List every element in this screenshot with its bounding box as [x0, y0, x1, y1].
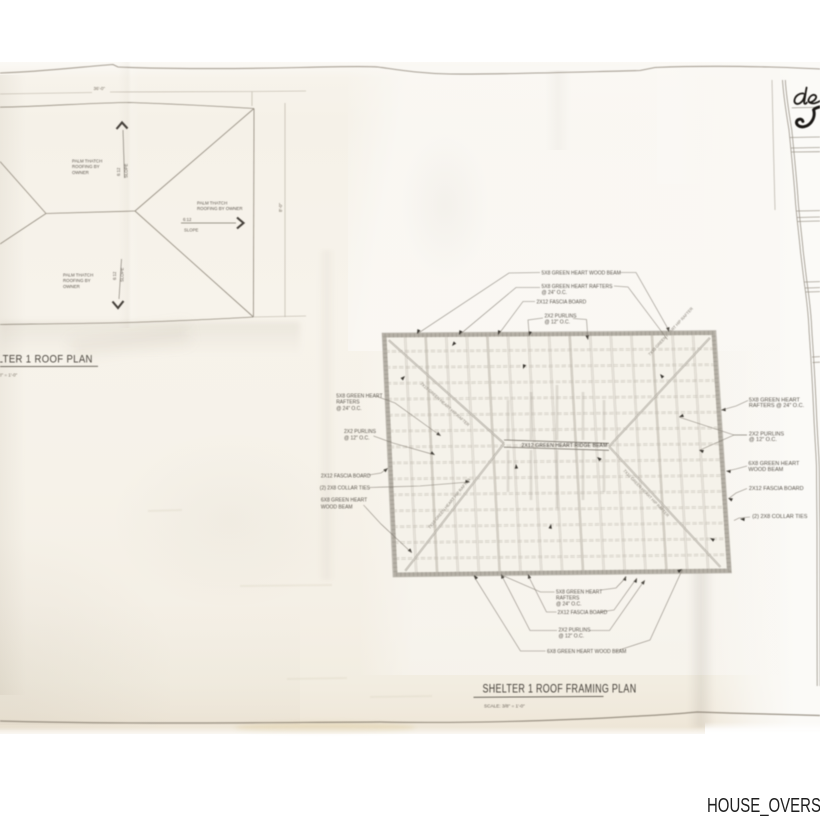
svg-text:OWNER: OWNER — [63, 284, 80, 289]
svg-text:ROOFING BY OWNER: ROOFING BY OWNER — [197, 206, 243, 211]
svg-text:(2) 2X8 COLLAR TIES: (2) 2X8 COLLAR TIES — [752, 514, 808, 520]
svg-text:@ 12" O.C.: @ 12" O.C. — [344, 435, 369, 441]
svg-text:6X8 GREEN HEART WOOD BEAM: 6X8 GREEN HEART WOOD BEAM — [547, 649, 626, 655]
svg-text:5X8 GREEN HEART WOOD BEAM: 5X8 GREEN HEART WOOD BEAM — [542, 271, 621, 277]
svg-text:SCALE: 3/8" = 1'-0": SCALE: 3/8" = 1'-0" — [484, 704, 525, 709]
svg-text:SLOPE: SLOPE — [124, 164, 129, 178]
svg-text:SHELTER 1 ROOF FRAMING PLAN: SHELTER 1 ROOF FRAMING PLAN — [483, 684, 637, 696]
svg-text:WOOD BEAM: WOOD BEAM — [748, 467, 783, 473]
svg-text:2X12 FASCIA BOARD: 2X12 FASCIA BOARD — [558, 610, 608, 616]
svg-text:PALM THATCH: PALM THATCH — [197, 201, 227, 206]
svg-text:2X2 PURLINS: 2X2 PURLINS — [749, 432, 784, 438]
svg-text:ROOFING BY: ROOFING BY — [63, 278, 91, 283]
svg-text:@ 24" O.C.: @ 24" O.C. — [336, 406, 361, 412]
svg-text:2X2 PURLINS: 2X2 PURLINS — [545, 314, 578, 320]
svg-text:@ 24" O.C.: @ 24" O.C. — [556, 602, 581, 608]
svg-text:6:12: 6:12 — [116, 167, 121, 176]
svg-text:PALM THATCH: PALM THATCH — [72, 159, 102, 164]
svg-text:@ 12" O.C.: @ 12" O.C. — [749, 437, 777, 443]
svg-text:WOOD BEAM: WOOD BEAM — [321, 504, 353, 510]
svg-text:5X8 GREEN HEART: 5X8 GREEN HEART — [336, 393, 382, 399]
svg-text:5X8 GREEN HEART: 5X8 GREEN HEART — [749, 397, 801, 403]
svg-text:SCALE: 3/8" = 1'-0": SCALE: 3/8" = 1'-0" — [0, 373, 18, 378]
svg-text:SLOPE: SLOPE — [184, 228, 198, 233]
svg-text:SHELTER 1 ROOF PLAN: SHELTER 1 ROOF PLAN — [0, 354, 93, 366]
svg-text:@ 12" O.C.: @ 12" O.C. — [545, 320, 570, 326]
svg-text:6X8 GREEN HEART: 6X8 GREEN HEART — [321, 498, 367, 504]
svg-text:6X8 GREEN HEART: 6X8 GREEN HEART — [748, 461, 800, 467]
svg-text:RAFTERS: RAFTERS — [556, 596, 580, 602]
svg-text:8'-0": 8'-0" — [278, 203, 283, 212]
svg-text:36'-0": 36'-0" — [94, 86, 106, 91]
svg-text:2X12 GREEN HEART RIDGE BEAM: 2X12 GREEN HEART RIDGE BEAM — [522, 443, 608, 449]
svg-text:SLOPE: SLOPE — [120, 268, 125, 282]
svg-text:6:12: 6:12 — [112, 271, 117, 280]
svg-text:PALM THATCH: PALM THATCH — [63, 273, 93, 278]
svg-text:OWNER: OWNER — [72, 170, 89, 175]
svg-text:2X12 FASCIA BOARD: 2X12 FASCIA BOARD — [537, 300, 587, 306]
svg-text:RAFTERS @ 24" O.C.: RAFTERS @ 24" O.C. — [749, 403, 805, 409]
svg-text:2X2 PURLINS: 2X2 PURLINS — [559, 628, 592, 634]
svg-text:2X12 FASCIA BOARD: 2X12 FASCIA BOARD — [321, 473, 371, 479]
svg-text:2X2 PURLINS: 2X2 PURLINS — [344, 429, 377, 435]
svg-text:(2) 2X8 COLLAR TIES: (2) 2X8 COLLAR TIES — [320, 486, 371, 492]
svg-text:ROOFING BY: ROOFING BY — [72, 164, 100, 169]
svg-text:6:12: 6:12 — [183, 217, 192, 222]
svg-text:2X12 FASCIA BOARD: 2X12 FASCIA BOARD — [749, 486, 804, 492]
svg-text:5X8 GREEN HEART RAFTERS: 5X8 GREEN HEART RAFTERS — [542, 284, 614, 290]
svg-text:@ 24" O.C.: @ 24" O.C. — [542, 290, 567, 296]
svg-text:5X8 GREEN HEART: 5X8 GREEN HEART — [556, 590, 602, 596]
svg-text:@ 12" O.C.: @ 12" O.C. — [559, 634, 584, 640]
svg-text:RAFTERS: RAFTERS — [336, 400, 360, 406]
